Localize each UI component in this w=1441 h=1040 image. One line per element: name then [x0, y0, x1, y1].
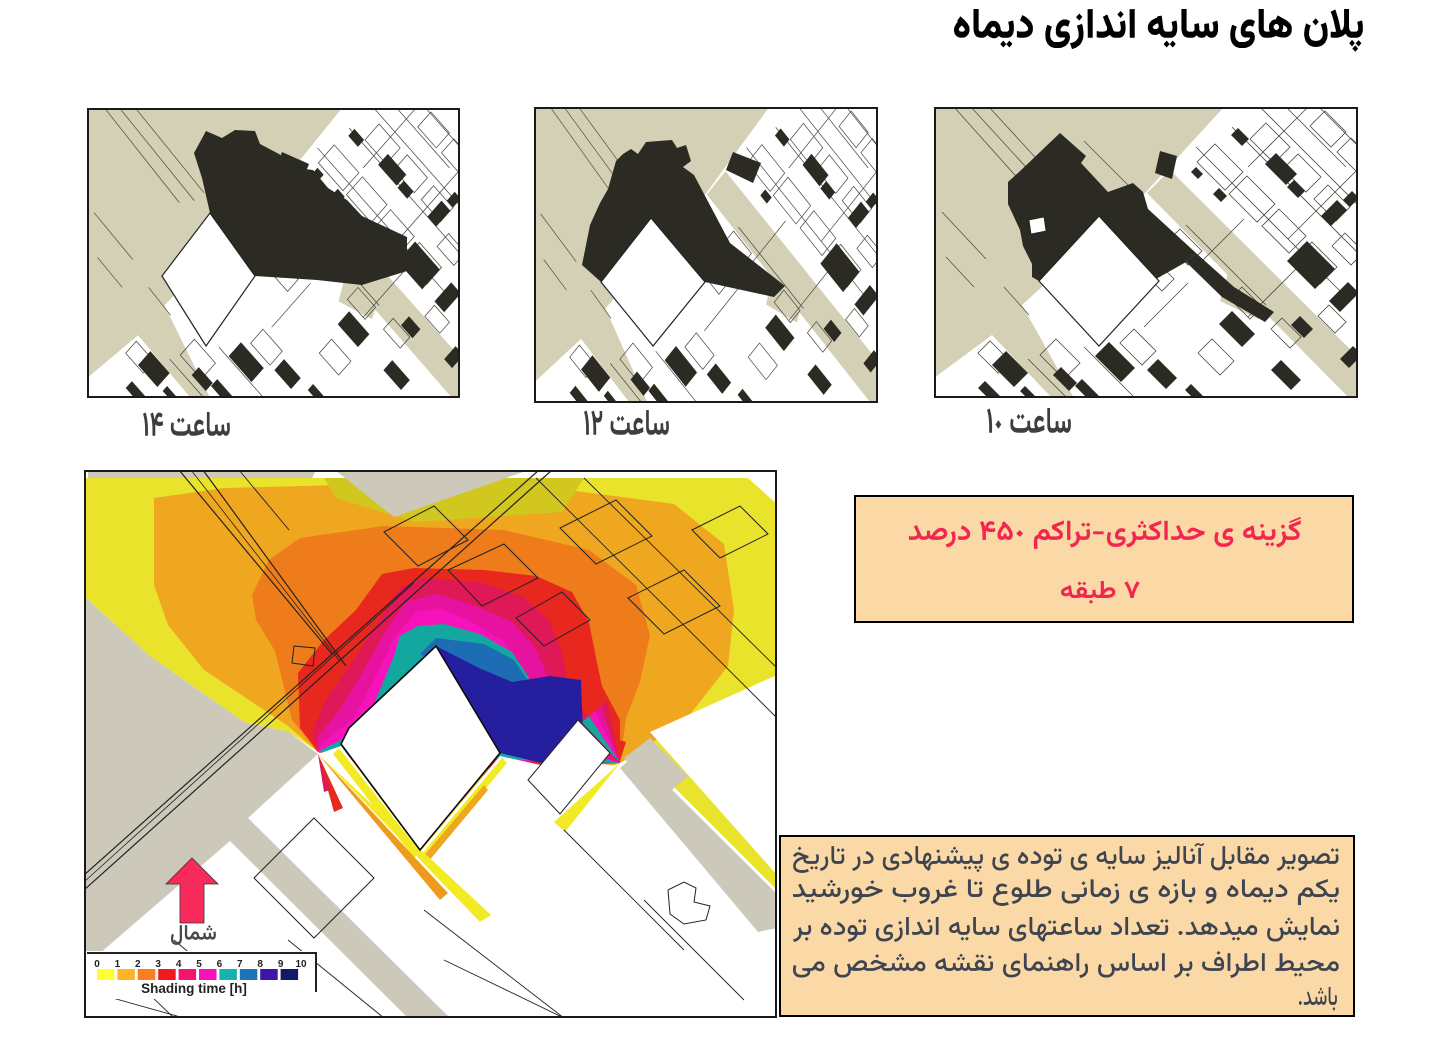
- svg-text:0: 0: [94, 959, 100, 970]
- svg-text:9: 9: [278, 959, 284, 970]
- svg-text:7: 7: [237, 959, 243, 970]
- svg-text:4: 4: [176, 959, 182, 970]
- svg-text:5: 5: [196, 959, 202, 970]
- svg-text:6: 6: [217, 959, 223, 970]
- svg-text:3: 3: [155, 959, 161, 970]
- svg-text:10: 10: [295, 959, 307, 970]
- svg-text:8: 8: [257, 959, 263, 970]
- svg-text:Shading time [h]: Shading time [h]: [141, 981, 247, 996]
- svg-text:1: 1: [115, 959, 121, 970]
- svg-text:2: 2: [135, 959, 141, 970]
